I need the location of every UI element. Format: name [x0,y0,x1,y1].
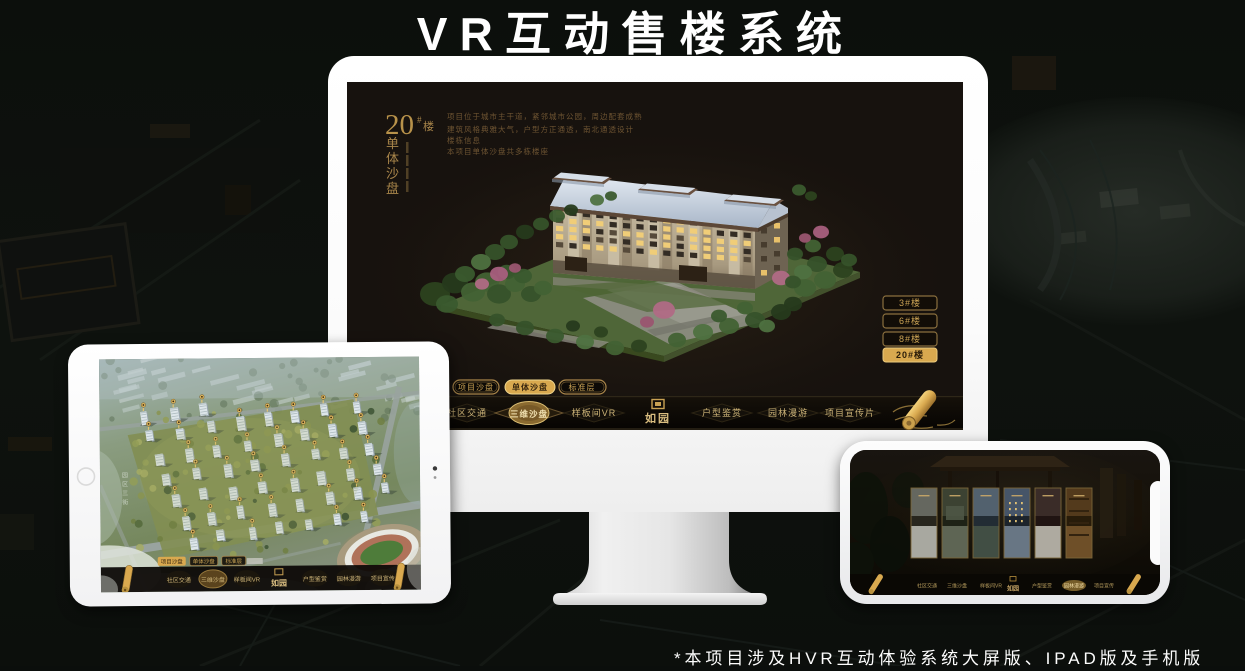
svg-text:三维沙盘: 三维沙盘 [510,409,548,419]
svg-text:如园: 如园 [1007,585,1019,593]
svg-text:20#楼: 20#楼 [896,349,924,360]
svg-text:项目宣传片: 项目宣传片 [825,407,875,418]
svg-text:样板间VR: 样板间VR [572,407,617,418]
svg-text:项目宣传: 项目宣传 [1094,583,1114,590]
svg-text:样板间VR: 样板间VR [980,583,1002,590]
svg-text:三维沙盘: 三维沙盘 [947,583,967,590]
svg-text:楼栋信息: 楼栋信息 [447,135,481,145]
svg-text:户型鉴赏: 户型鉴赏 [702,407,742,418]
svg-text:单: 单 [386,136,399,151]
svg-text:单体沙盘: 单体沙盘 [512,382,548,392]
svg-text:3#楼: 3#楼 [899,297,921,308]
svg-text:#: # [417,115,422,125]
svg-text:社区交通: 社区交通 [447,407,487,418]
svg-text:园林漫游: 园林漫游 [1064,583,1084,590]
svg-text:楼: 楼 [423,119,434,133]
svg-text:项目位于城市主干道，紧邻城市公园，周边配套成熟: 项目位于城市主干道，紧邻城市公园，周边配套成熟 [447,111,643,121]
svg-text:体: 体 [386,151,399,166]
svg-text:标准层: 标准层 [569,382,596,392]
svg-text:户型鉴赏: 户型鉴赏 [1032,583,1052,590]
svg-text:6#楼: 6#楼 [899,315,921,326]
svg-text:本项目单体沙盘共多栋楼座: 本项目单体沙盘共多栋楼座 [447,146,549,156]
svg-text:建筑风格典雅大气，户型方正通透，南北通透设计: 建筑风格典雅大气，户型方正通透，南北通透设计 [447,124,634,134]
svg-text:盘: 盘 [386,181,399,196]
svg-text:项目沙盘: 项目沙盘 [458,382,494,392]
svg-text:沙: 沙 [386,166,399,181]
svg-text:8#楼: 8#楼 [899,333,921,344]
svg-text:社区交通: 社区交通 [917,583,937,590]
svg-text:如园: 如园 [645,411,671,425]
svg-text:园林漫游: 园林漫游 [768,407,808,418]
